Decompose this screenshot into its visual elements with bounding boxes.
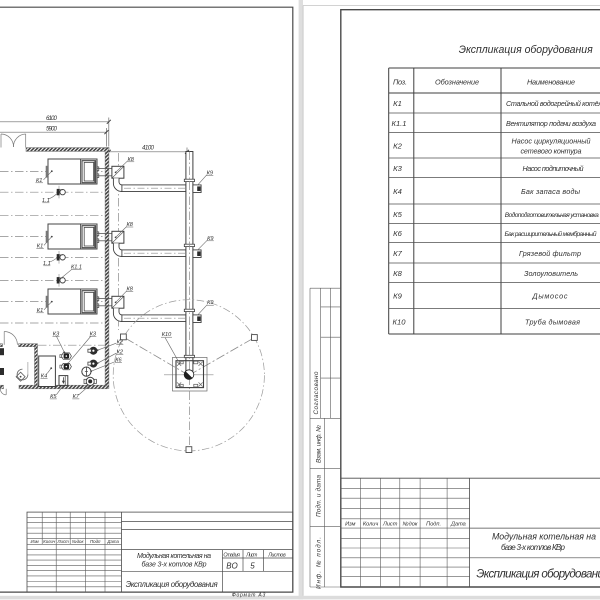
svg-text:К1.1: К1.1 [391,119,406,128]
svg-text:К10: К10 [393,317,407,326]
svg-text:Наименование: Наименование [527,78,575,87]
svg-text:Лист: Лист [245,552,258,558]
svg-text:Дата: Дата [450,522,466,528]
svg-text:Дата: Дата [106,539,119,544]
svg-text:Согласовано: Согласовано [313,371,320,414]
svg-text:ВО: ВО [226,561,237,570]
svg-text:Изм: Изм [31,539,39,544]
svg-text:Насос подпиточный: Насос подпиточный [523,164,584,173]
svg-text:Модульная котельная на: Модульная котельная на [137,552,211,560]
svg-text:Дымосос: Дымосос [532,292,568,301]
svg-text:Подп: Подп [90,539,101,544]
svg-text:К5: К5 [393,210,402,219]
svg-text:Экспликация оборудования: Экспликация оборудования [459,44,593,56]
svg-text:Инф. № подл.: Инф. № подл. [314,537,322,589]
svg-text:Модульная котельная на: Модульная котельная на [492,532,596,542]
svg-text:Водоподготовительная установка: Водоподготовительная установка [505,211,599,219]
svg-text:Стальной водогрейный котёл КВр: Стальной водогрейный котёл КВр [506,99,600,108]
svg-text:К1: К1 [393,99,402,108]
svg-text:К4: К4 [393,187,402,196]
svg-text:Экспликация оборудования: Экспликация оборудования [476,569,600,581]
svg-text:Взам. инф. №: Взам. инф. № [315,425,322,463]
svg-text:4100: 4100 [142,145,155,152]
svg-text:базе 3-х котлов КВр: базе 3-х котлов КВр [142,561,207,569]
svg-text:Лист: Лист [382,522,398,528]
svg-text:Подп.: Подп. [426,522,441,528]
svg-text:Насос циркуляционный: Насос циркуляционный [512,137,591,146]
svg-text:Грязевой фильтр: Грязевой фильтр [519,249,581,258]
svg-text:Экспликация оборудования: Экспликация оборудования [126,580,219,589]
svg-text:Поз.: Поз. [393,78,407,87]
svg-text:К6: К6 [393,229,402,238]
svg-text:К9: К9 [393,292,402,301]
svg-text:сетевого контура: сетевого контура [521,147,582,156]
svg-text:К7: К7 [393,249,402,258]
svg-text:Обозначение: Обозначение [435,78,479,87]
svg-text:Вентилятор подачи воздуха: Вентилятор подачи воздуха [506,119,596,128]
svg-text:Бак расширительный мембранный: Бак расширительный мембранный [505,230,597,238]
svg-text:Труба дымовая: Труба дымовая [525,317,580,326]
svg-text:Листов: Листов [267,552,286,558]
svg-text:К3: К3 [393,164,402,173]
svg-text:Бак запаса воды: Бак запаса воды [521,187,581,196]
svg-text:Стадия: Стадия [223,552,240,558]
svg-text:№док: №док [403,522,418,528]
svg-text:К8: К8 [393,269,402,278]
svg-text:Подп. и дата: Подп. и дата [314,475,322,517]
svg-text:К2: К2 [393,141,402,150]
svg-text:Колич: Колич [363,522,379,528]
svg-text:Золоуловитель: Золоуловитель [524,269,578,278]
svg-text:№док: №док [72,539,85,544]
svg-text:Изм: Изм [345,522,356,528]
svg-text:Лист: Лист [57,539,70,544]
svg-text:базе 3-х котлов КВр: базе 3-х котлов КВр [501,543,566,552]
svg-text:Колич: Колич [43,539,56,544]
svg-text:5900: 5900 [46,126,58,133]
svg-text:6100: 6100 [46,115,58,122]
svg-text:5: 5 [250,561,255,570]
svg-text:Формат А3: Формат А3 [232,592,266,598]
